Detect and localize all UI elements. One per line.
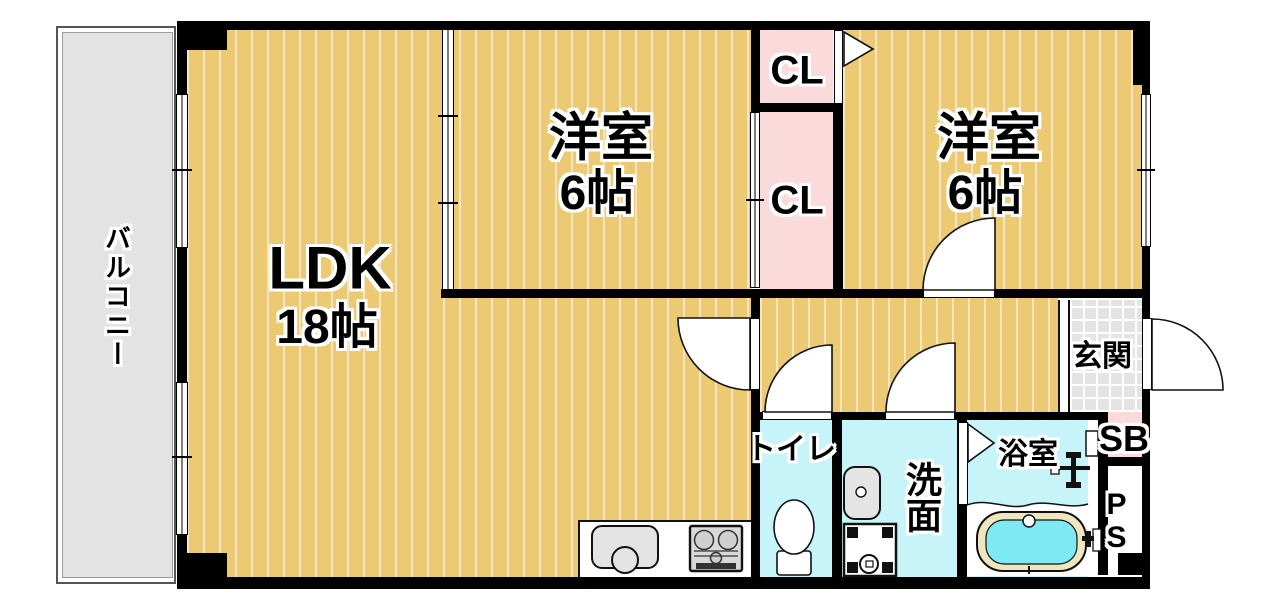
bedroom-top-size-label: 6帖: [560, 153, 635, 223]
toilet-label: トイレ: [746, 424, 836, 468]
shoe-box-label: SB: [1099, 418, 1149, 460]
window-tick: [746, 199, 764, 201]
washroom-label: 洗面: [895, 461, 947, 533]
closet-lower-label: CL: [770, 179, 823, 224]
door-panel-washroom: [885, 411, 955, 420]
wall-bottom: [177, 577, 1150, 589]
corner-top-right: [1133, 21, 1150, 85]
ps-step-block: [1118, 553, 1142, 575]
door-panel-bedroom-right: [923, 289, 995, 298]
corner-top-left: [177, 21, 227, 50]
entrance-label: 玄関: [1072, 331, 1132, 375]
bathroom-label: 浴室: [998, 429, 1058, 473]
door-panel-entrance: [1142, 318, 1152, 390]
ldk-size-label: 18帖: [276, 287, 377, 357]
door-panel-ldk: [750, 318, 760, 390]
door-panel-toilet: [762, 411, 832, 420]
wall-closet-divider: [751, 103, 843, 112]
door-panel-bathroom: [958, 422, 968, 505]
window-tick: [438, 202, 458, 204]
wall-top: [177, 21, 1150, 30]
window-balcony-lower: [176, 382, 188, 535]
sliding-door-ldk-bedroom: [442, 29, 454, 290]
wall-hall-c: [955, 412, 1108, 420]
window-tick: [1137, 169, 1155, 171]
wall-right-2: [1142, 247, 1150, 318]
window-tick: [172, 456, 192, 458]
balcony-label: バルコニー: [99, 225, 136, 370]
wall-left-2: [177, 248, 187, 382]
entrance-step: [1058, 300, 1070, 412]
hallway-floor: [760, 298, 1058, 412]
wall-ldk-hall-b: [751, 390, 760, 577]
floor-plan: バルコニー: [0, 0, 1280, 609]
closet-upper-label: CL: [770, 49, 823, 94]
pipe-space-label: PS: [1099, 488, 1133, 554]
wall-closet-right: [833, 103, 843, 298]
bedroom-right-size-label: 6帖: [948, 153, 1023, 223]
corner-bottom-left: [177, 553, 227, 589]
wall-hall-b: [832, 412, 885, 420]
door-panel-closet-upper: [834, 30, 843, 104]
wall-closet-left: [751, 30, 760, 112]
wall-ldk-hall-a: [751, 298, 760, 318]
wall-mid-left: [441, 289, 923, 298]
window-balcony-upper: [176, 94, 188, 248]
door-swing-entrance-icon: [1152, 319, 1223, 390]
window-tick: [172, 169, 192, 171]
kitchen-counter: [578, 520, 751, 577]
window-tick: [438, 115, 458, 117]
wall-mid-right: [995, 289, 1150, 298]
bathroom-ledge: [1088, 420, 1098, 575]
ldk-floor: [187, 30, 751, 577]
